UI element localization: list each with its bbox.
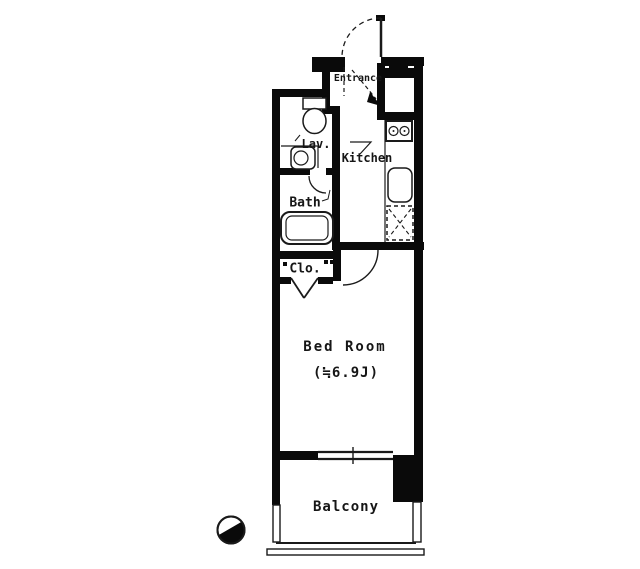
wall-closet-bottom-right xyxy=(318,277,333,284)
door-swing-arc xyxy=(342,18,381,57)
floor-plan-drawing xyxy=(0,0,640,569)
closet-pivot-dot-left xyxy=(283,262,287,266)
toilet-icon xyxy=(303,98,326,134)
room-label-bath: Bath xyxy=(289,197,320,210)
closet-door-mask xyxy=(291,277,318,298)
bathtub-inner xyxy=(286,216,328,240)
wall-window-left xyxy=(272,451,318,460)
bath-label-leader xyxy=(322,190,330,201)
balcony-rail-left xyxy=(273,505,280,542)
wall-bath-closet xyxy=(272,251,333,259)
room-label-entrance: Entrance xyxy=(334,74,382,84)
wall-lav-top xyxy=(272,89,322,97)
entrance-door-icon xyxy=(342,15,385,57)
bathtub-icon xyxy=(281,212,333,244)
stove-burner-right-dot xyxy=(404,130,406,132)
wall-kitchen-bottom xyxy=(332,242,424,250)
wall-balcony-pillar xyxy=(393,455,423,502)
balcony-outer-edge xyxy=(267,549,424,555)
closet-pivot-dot-right2 xyxy=(330,260,334,264)
closet-pivot-dot-right1 xyxy=(324,260,328,264)
wall-meterbox-top xyxy=(383,68,414,78)
balcony-rail-right xyxy=(413,502,421,542)
floor-plan-image: Entrance Lav. Kitchen Bath Clo. Bed Room… xyxy=(0,0,640,569)
kitchen-sink-icon xyxy=(388,168,412,202)
wall-right xyxy=(414,57,423,457)
lav-label-leader xyxy=(295,135,300,141)
room-size-bedroom: (≒6.9J) xyxy=(313,366,379,380)
room-label-kitchen: Kitchen xyxy=(342,152,393,164)
room-label-bedroom: Bed Room xyxy=(303,340,386,354)
sliding-window-icon xyxy=(318,447,393,464)
wall-meterbox-bottom xyxy=(377,112,414,120)
toilet-bowl xyxy=(303,109,326,134)
wall-left xyxy=(272,89,280,505)
washbasin-bowl xyxy=(294,151,308,165)
bath-door-arc xyxy=(309,176,326,193)
stove-icon xyxy=(386,121,412,141)
toilet-tank xyxy=(303,98,326,109)
wall-closet-right xyxy=(333,248,341,281)
room-label-lavatory: Lav. xyxy=(302,138,331,150)
wall-closet-bottom-left xyxy=(272,277,291,284)
room-label-closet: Clo. xyxy=(289,263,320,276)
wall-lav-bath-right xyxy=(326,168,333,175)
refrigerator-space-icon xyxy=(387,206,413,240)
room-label-balcony: Balcony xyxy=(313,500,379,514)
bedroom-door-arc xyxy=(343,250,378,285)
stove-burner-left-dot xyxy=(393,130,395,132)
north-compass-icon xyxy=(214,517,250,549)
